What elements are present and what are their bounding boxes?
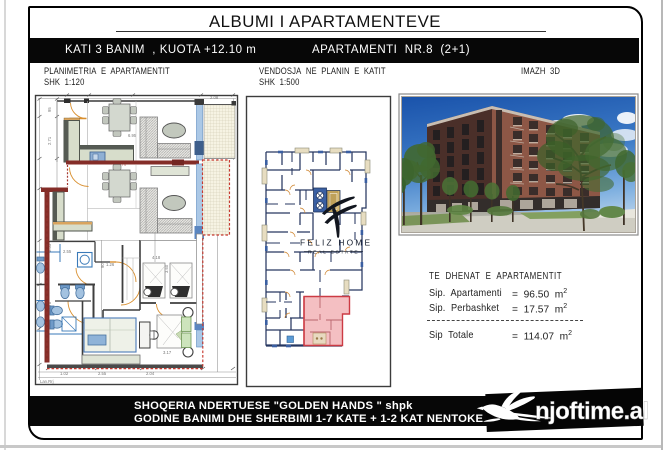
svg-text:njoftime.al: njoftime.al [535, 398, 648, 425]
